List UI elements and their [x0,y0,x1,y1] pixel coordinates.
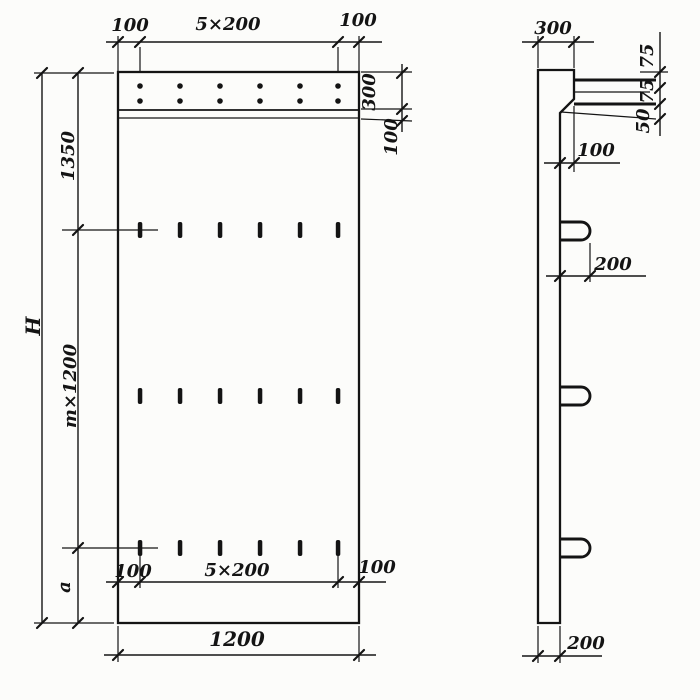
front-view: 100 5×200 100 1350 m×1200 a H [21,10,412,662]
drawing-sheet: 100 5×200 100 1350 m×1200 a H [0,0,700,700]
slot-dash [258,222,263,238]
hook-loop [560,222,590,240]
anchor-dots [137,83,341,104]
dim-label-1350: 1350 [58,130,79,181]
anchor-dot [217,98,223,104]
anchor-dot [177,83,183,89]
side-view: 300 75 75 50 100 [522,18,668,663]
side-dim-top: 300 [522,18,594,68]
front-dim-bottom-total: 1200 [104,626,376,662]
hook-loop [560,387,590,405]
anchor-dot [335,98,341,104]
slot-dash [336,540,341,556]
anchor-dot [137,98,143,104]
dim-label-1200: 1200 [209,627,265,651]
dim-label-75-mid: 75 [637,78,658,103]
anchor-dot [335,83,341,89]
dim-label-100: 100 [381,118,402,156]
dim-label-50: 50 [633,108,654,134]
dim-label-300: 300 [534,18,572,39]
front-dim-right: 300 100 [359,64,412,156]
slot-dash [298,388,303,404]
anchor-dot [297,98,303,104]
panel-technical-drawing: 100 5×200 100 1350 m×1200 a H [0,0,700,700]
dim-label-top-right: 100 [339,10,377,31]
front-panel-outline [118,72,359,623]
dim-label-m-1200: m×1200 [60,343,81,428]
slot-dash [298,222,303,238]
slot-dash [178,222,183,238]
dim-label-100: 100 [577,140,615,161]
slot-dash [178,388,183,404]
front-dim-left: 1350 m×1200 a H [21,68,158,628]
anchor-dot [217,83,223,89]
dim-label-top-center: 5×200 [195,14,261,35]
dim-label-300: 300 [359,73,380,111]
slot-dash [218,388,223,404]
anchor-dot [137,83,143,89]
slot-dash [138,388,143,404]
dim-label-200: 200 [593,254,632,275]
slot-dash [178,540,183,556]
dim-label-H: H [21,315,45,336]
slot-dash [336,388,341,404]
slot-dash [298,540,303,556]
anchor-dot [297,83,303,89]
anchor-dot [257,98,263,104]
dim-label-bottom-left: 100 [114,561,152,582]
side-dim-bottom: 200 [522,626,605,663]
hook-loop [560,539,590,557]
anchor-dot [177,98,183,104]
slot-dash [218,222,223,238]
front-dim-top: 100 5×200 100 [106,10,382,71]
slot-dash [258,388,263,404]
dim-label-200-thickness: 200 [566,633,605,654]
slot-rows [138,222,340,556]
slot-dash [258,540,263,556]
dim-label-a: a [54,581,75,593]
dim-label-bottom-center: 5×200 [204,560,270,581]
dim-label-75-top: 75 [637,43,658,68]
slot-dash [336,222,341,238]
anchor-dot [257,83,263,89]
side-dim-right-chain: 75 75 50 [633,32,668,136]
front-dim-bottom-inner: 100 5×200 100 [106,556,396,588]
dim-label-top-left: 100 [111,15,149,36]
slot-dash [218,540,223,556]
dim-label-bottom-right: 100 [358,557,396,578]
